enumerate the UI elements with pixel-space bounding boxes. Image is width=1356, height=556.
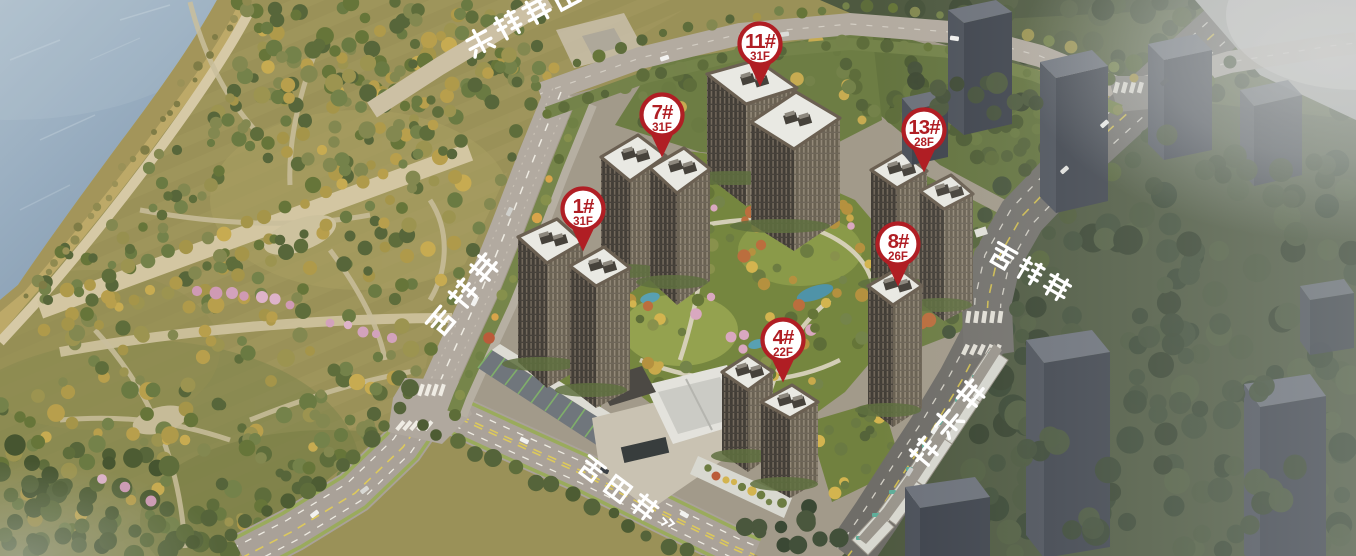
svg-text:4#: 4# — [773, 326, 795, 349]
svg-text:28F: 28F — [914, 137, 934, 149]
svg-text:31F: 31F — [652, 122, 672, 134]
svg-text:31F: 31F — [750, 51, 770, 63]
svg-text:11#: 11# — [745, 30, 777, 53]
svg-text:31F: 31F — [573, 216, 593, 228]
svg-text:26F: 26F — [888, 251, 908, 263]
svg-text:1#: 1# — [573, 195, 595, 218]
svg-text:7#: 7# — [652, 101, 674, 124]
svg-text:13#: 13# — [908, 116, 941, 139]
svg-text:22F: 22F — [773, 347, 793, 359]
svg-text:8#: 8# — [888, 230, 910, 253]
